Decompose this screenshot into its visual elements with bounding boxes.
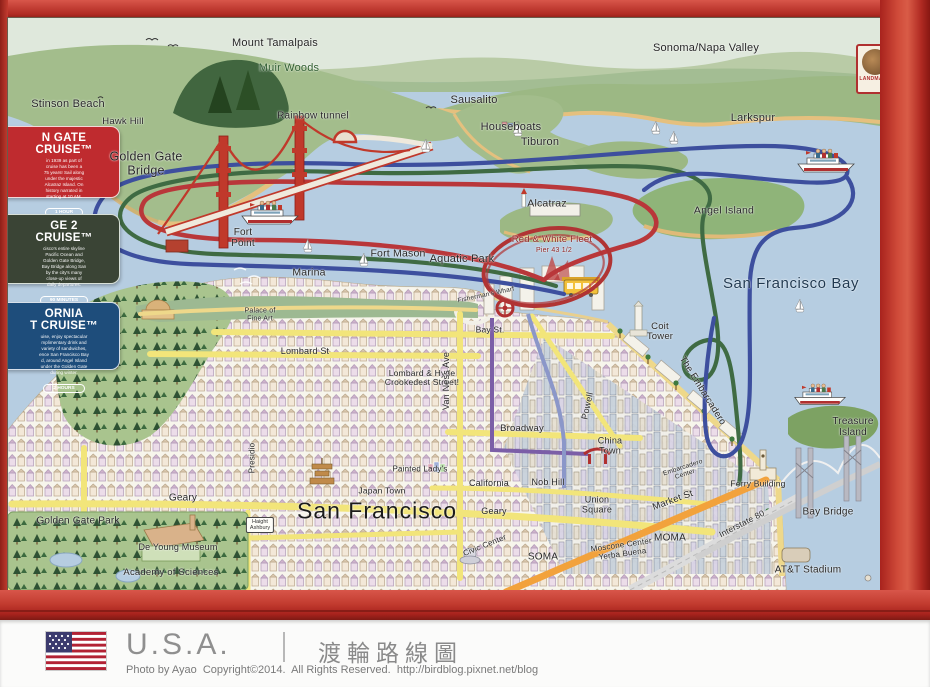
us-flag-icon [46, 632, 106, 670]
map-label-sonoma-napa-valley: Sonoma/Napa Valley [653, 43, 759, 55]
map-label-ferry-building: Ferry Building [730, 479, 785, 488]
label-line: Palace of [245, 307, 276, 315]
map-label-golden-gate-bridge: Golden GateBridge [109, 151, 182, 178]
map-label-red-white-fleet: Red & White Fleet [512, 235, 593, 245]
map-label-union-square: UnionSquare [582, 495, 612, 514]
cruise-card-golden-gate: N GATE CRUISE™ in 1939 as part of cruise… [8, 126, 120, 198]
map-label-palace-of-fine-art: Palace ofFine Art [245, 307, 276, 322]
sign-frame-seam [0, 610, 930, 612]
caption-title-chinese: 渡輪路線圖 [318, 634, 463, 668]
label-line: Golden Gate [109, 151, 182, 165]
map-label-larkspur: Larkspur [731, 113, 775, 125]
map-label-angel-island: Angel Island [694, 205, 754, 216]
map-label-marina: Marina [292, 267, 325, 278]
label-line: Ashbury [250, 525, 270, 531]
map-label-san-francisco-bay: San Francisco Bay [723, 276, 859, 292]
landmark-badge-picture [862, 49, 880, 75]
map-label-broadway: Broadway [500, 424, 544, 434]
map-label-moma: MOMA [654, 534, 686, 545]
label-line: Tower [647, 332, 673, 342]
map-label-treasure-island: TreasureIsland [832, 417, 873, 439]
caption-credit: Photo by Ayao Copyright©2014. All Rights… [126, 664, 538, 676]
map-label-nob-hill: Nob Hill [531, 478, 564, 488]
cruise-card-body: cisco's entire skyline Pacific Ocean and… [17, 246, 111, 288]
map-label-california-st: California [469, 479, 509, 489]
landmark-badge-text: LANDMARK [858, 76, 880, 82]
label-line: Island [832, 428, 873, 439]
map-label-van-ness-ave: Van Ness Ave [442, 352, 452, 410]
map-label-bay-bridge: Bay Bridge [803, 508, 854, 519]
label-line: Point [231, 239, 255, 250]
att-stadium-icon [782, 548, 810, 562]
cruise-title-line: GE 2 [17, 220, 111, 232]
fort-point-icon [166, 240, 188, 252]
map-label-hawk-hill: Hawk Hill [102, 117, 143, 127]
label-line: Town [598, 446, 623, 456]
map-label-chinatown: ChinaTown [598, 436, 623, 455]
map-board: LANDMARK N GATE CRUISE™ in 1939 as part … [8, 18, 880, 590]
label-line: Square [582, 505, 612, 515]
map-label-painted-ladys: Painted Lady's [392, 466, 447, 475]
map-label-stinson-beach: Stinson Beach [31, 99, 105, 111]
sign-frame-left [0, 0, 8, 620]
map-label-pier-43: Pier 43 1/2 [536, 247, 572, 255]
map-label-japan-town: Japan Town [358, 486, 405, 495]
map-label-bay-st: Bay St. [476, 325, 505, 334]
sign-frame-top [0, 0, 930, 18]
map-label-san-francisco: San Francisco [297, 499, 457, 524]
map-label-aquatic-park: Aquatic Park [430, 254, 495, 266]
label-line: Fine Art [245, 315, 276, 323]
cruise-title-line: T CRUISE™ [17, 320, 111, 332]
map-label-mount-tamalpais: Mount Tamalpais [232, 38, 318, 50]
cruise-card-body: in 1939 as part of cruise has been a 75 … [17, 158, 111, 200]
map-label-geary-downtown: Geary [481, 507, 507, 517]
map-label-golden-gate-park: Golden Gate Park [36, 517, 119, 528]
map-label-alcatraz: Alcatraz [527, 198, 567, 209]
sign-frame-right [880, 0, 930, 620]
caption-bar: U.S.A. 渡輪路線圖 Photo by Ayao Copyright©201… [0, 620, 930, 687]
cruise-title-line: N GATE [17, 132, 111, 144]
map-label-fort-mason: Fort Mason [370, 248, 425, 259]
map-label-geary-richmond: Geary [169, 494, 197, 505]
sign-frame-bottom [0, 590, 930, 620]
cruise-title-line: ORNIA [17, 308, 111, 320]
cruise-card-title: GE 2 CRUISE™ [17, 220, 111, 244]
map-label-lombard-st: Lombard St [281, 347, 330, 357]
caption-country: U.S.A. [126, 628, 231, 662]
landmark-badge: LANDMARK [856, 44, 880, 94]
cruise-duration-badge: 2 HOURS [43, 384, 84, 393]
cruise-title-line: CRUISE™ [17, 232, 111, 244]
map-label-de-young-museum: De Young Museum [138, 543, 217, 553]
map-label-coit-tower: CoitTower [647, 322, 673, 343]
frame-bolt [865, 575, 871, 581]
map-label-rainbow-tunnel: Rainbow tunnel [277, 112, 349, 123]
map-label-sausalito: Sausalito [450, 95, 497, 107]
label-line: Bridge [109, 164, 182, 178]
cruise-card-california-sunset: ORNIA T CRUISE™ uise, enjoy spectacular … [8, 302, 120, 370]
map-label-tiburon: Tiburon [521, 137, 559, 149]
cruise-card-title: ORNIA T CRUISE™ [17, 308, 111, 332]
cruise-card-body: uise, enjoy spectacular mplimentary drin… [17, 334, 111, 376]
map-label-muir-woods: Muir Woods [259, 63, 319, 75]
cruise-card-bridge-2-bridge: GE 2 CRUISE™ cisco's entire skyline Paci… [8, 214, 120, 284]
caption-divider [283, 632, 285, 662]
map-label-academy-of-sciences: Academy of Sciences [123, 568, 218, 578]
cruise-card-title: N GATE CRUISE™ [17, 132, 111, 156]
map-label-presidio: Presidio [249, 443, 258, 474]
photo-of-map-sign: LANDMARK N GATE CRUISE™ in 1939 as part … [0, 0, 930, 687]
map-sign-haight-ashbury: HaightAshbury [246, 517, 274, 533]
cruise-title-line: CRUISE™ [17, 144, 111, 156]
map-label-fort-point: FortPoint [231, 228, 255, 250]
map-label-att-stadium: AT&T Stadium [775, 566, 842, 577]
map-label-soma: SOMA [528, 553, 558, 564]
map-label-houseboats: Houseboats [481, 122, 542, 134]
rainbow-tunnel-icon [334, 131, 356, 142]
